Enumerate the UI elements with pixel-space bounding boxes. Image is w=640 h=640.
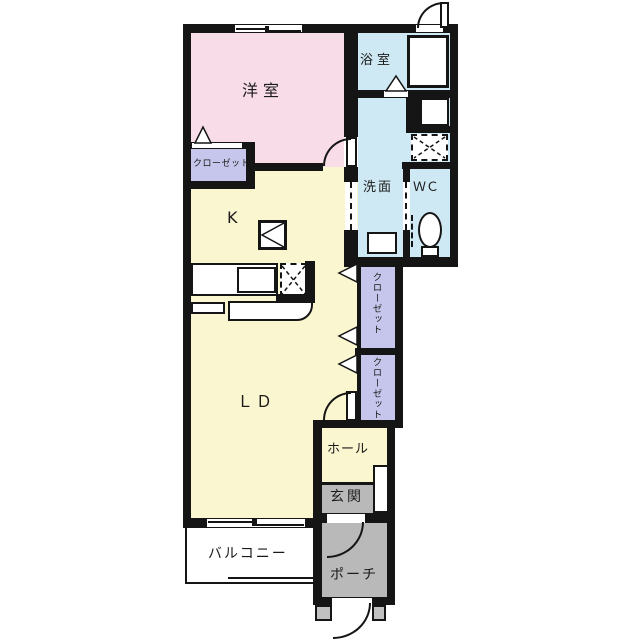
kitchen-label: K [227,210,238,226]
bedroom-window-pane-left [236,28,267,30]
wall-under-cabinet [420,126,450,133]
washroom-sliding-door [350,182,352,230]
wall-bedroom-closet-bottom [183,181,255,189]
bedroom-closet-door-tick [242,142,246,149]
porch-door-arc [333,603,371,639]
ld-window-tick [252,519,257,526]
porch-stub-left [315,605,332,621]
wall-hall-top [313,420,397,428]
bedroom-window-tick [265,26,269,32]
bath-door-gap [384,91,408,97]
wall-washer-divider [402,162,458,169]
vanity-sink [367,232,397,254]
shoe-cabinet [373,465,389,513]
bedroom-closet-label: クローゼット [193,160,250,169]
ld-window-pane-left [208,521,252,523]
wall-right-outer [450,24,458,267]
wall-bedroom-bath-2 [344,167,358,182]
washing-machine-space [411,134,448,161]
hall-label: ホール [327,443,369,456]
wall-closet-column-right [395,260,403,428]
balcony-label: バルコニー [208,547,288,561]
wc-inner-door-line [411,215,413,247]
toilet-tank [421,246,439,257]
closet-lower-label: クローゼット [371,357,381,420]
wall-closet-divider [355,348,395,355]
entrance-label: 玄関 [330,490,364,504]
kitchen-peninsula-counter [228,301,313,321]
refrigerator-space [280,263,307,297]
bedroom-closet-door-strip [191,142,246,149]
wall-hall-entrance-divider [322,482,375,485]
living-dining-label: ＬＤ [237,394,275,410]
bath-service-door-arc [417,2,444,28]
bathtub [407,35,449,88]
wall-washer-chunk [406,97,420,133]
bath-label: 浴室 [360,54,394,67]
floor-plan: 洋室 浴室 洗面 ＷＣ クローゼット K ＬＤ クローゼット クローゼット ホー… [0,0,640,640]
balcony-railing-line [228,577,318,579]
porch-label: ポーチ [330,568,378,582]
bedroom-window-pane-right [269,30,301,32]
wc-label: ＷＣ [413,181,439,194]
porch-stub-right [372,605,386,621]
kitchen-counter-end [191,302,225,314]
toilet-bowl [418,212,442,248]
ld-window-pane-right [256,524,304,526]
bedroom-label: 洋室 [242,83,284,99]
bath-cabinet [420,98,449,126]
wall-bedroom-bath [344,24,358,137]
cooktop [258,220,287,250]
wc-sliding-door [405,182,407,230]
wall-left [183,24,191,528]
kitchen-sink [237,267,276,293]
washroom-label: 洗面 [363,181,393,194]
closet-upper-label: クローゼット [371,272,381,335]
wall-bedroom-bottom [255,163,323,171]
wall-closet-left-line [357,264,359,420]
